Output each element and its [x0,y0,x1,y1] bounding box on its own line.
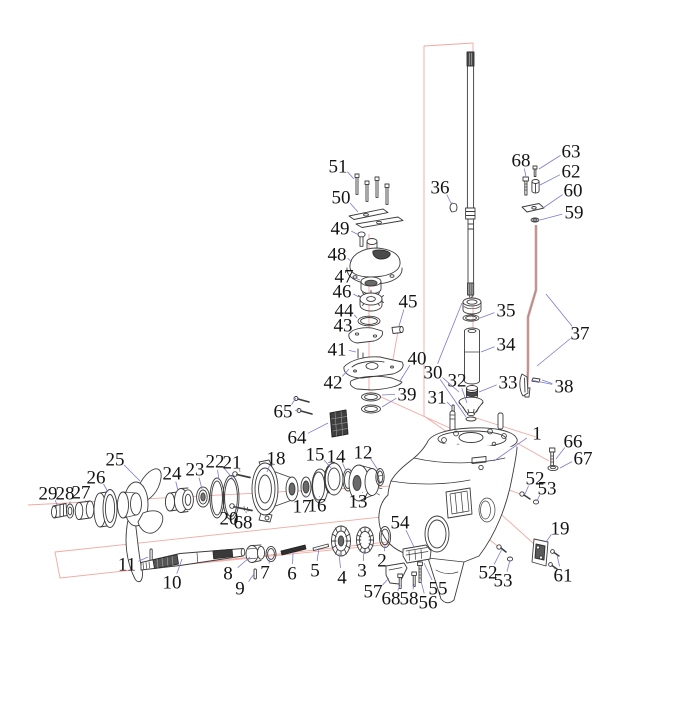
part-label: 7 [260,563,270,584]
part-40-gasket [350,376,402,390]
part-39-seal-rings [362,393,381,413]
part-shift-rod [524,225,536,397]
part-labels: 5150494847464443414245403965643668636260… [39,142,593,614]
part-label: 55 [429,579,448,600]
part-28-washer [66,504,73,518]
part-label: 21 [223,453,242,474]
part-label: 59 [565,203,584,224]
part-26-thrust-ring [94,490,117,528]
part-45-tube-fitting [392,327,403,334]
leader-line [537,339,571,367]
leader-line [438,303,462,364]
part-43-gasket [349,328,383,343]
leader-line [308,423,328,433]
part-label: 3 [357,561,367,582]
part-15-bearing [325,463,343,495]
part-36-clip [450,203,457,212]
part-7-washer [266,546,276,561]
leader-line [481,347,495,352]
part-57-trim-tab [386,563,407,584]
part-label: 32 [448,371,467,392]
part-label: 19 [551,519,570,540]
part-19-anode [532,539,548,566]
part-label: 46 [333,282,352,303]
part-50-plates [349,209,403,228]
leader-line [543,195,563,208]
part-label: 61 [554,566,573,587]
part-label: 15 [306,445,325,466]
leader-line [382,394,395,395]
part-27-spacer [75,501,94,520]
part-label: 33 [499,373,518,394]
leader-line [356,278,360,280]
part-label: 23 [186,460,205,481]
part-label: 68 [512,151,531,172]
part-59-oring [531,218,539,222]
part-label: 25 [106,450,125,471]
leader-line [540,214,562,220]
part-label: 35 [497,301,516,322]
part-label: 39 [398,385,417,406]
part-12-oring [376,468,384,485]
part-label: 37 [571,324,590,345]
part-label: 57 [364,582,383,603]
part-label: 13 [349,492,368,513]
part-label: 54 [391,513,411,534]
part-46-impeller [359,291,384,312]
part-66-bolt [550,448,555,466]
part-62-connector [532,180,539,193]
part-49-bolt [358,232,365,246]
part-label: 63 [562,142,581,163]
part-label: 5 [310,561,320,582]
leader-line [249,574,255,582]
part-label: 16 [308,496,327,517]
part-label: 4 [337,568,347,589]
part-label: 53 [494,571,513,592]
part-42-pump-base-plate [344,357,403,378]
leader-line [479,385,497,392]
part-label: 48 [328,245,347,266]
part-label: 62 [562,162,581,183]
part-label: 53 [538,479,557,500]
part-label: 24 [163,464,183,485]
exploded-parts-diagram: 5150494847464443414245403965643668636260… [0,0,693,720]
part-65-screws [294,397,312,415]
leader-line [539,155,561,169]
part-label: 68 [382,589,401,610]
part-label: 11 [118,555,136,576]
leader-line [382,578,389,585]
leader-line [349,350,356,352]
leader-line [480,313,495,318]
part-label: 2 [377,551,387,572]
part-17-seal [301,477,311,497]
leader-line [124,465,140,481]
leader-line [350,203,358,212]
leader-line [540,175,560,185]
part-53-washer-upper [533,500,538,504]
part-label: 68 [234,513,253,534]
part-label: 43 [334,316,353,337]
leader-line [546,294,572,326]
part-label: 1 [532,424,542,445]
part-9-pin [254,569,256,579]
part-64-anode-plate [330,410,348,437]
part-label: 6 [287,564,297,585]
part-label: 60 [564,181,583,202]
part-24-thrust-hub [165,488,193,513]
part-label: 67 [574,449,593,470]
part-label: 30 [424,363,443,384]
part-label: 36 [431,178,450,199]
part-23-washer [197,487,210,507]
part-label: 65 [274,402,293,423]
part-label: 10 [163,573,182,594]
part-52-screw-upper [520,492,530,499]
part-63-screw [533,166,537,177]
part-56-bolt [418,562,423,583]
part-35-washer [463,315,479,321]
part-label: 58 [400,589,419,610]
part-label: 27 [72,483,91,504]
leader-line [347,172,354,179]
diagram-canvas: 5150494847464443414245403965643668636260… [0,0,693,720]
part-label: 31 [428,388,447,409]
part-label: 8 [223,564,233,585]
part-label: 12 [354,443,373,464]
part-label: 49 [331,219,350,240]
part-51-bolts [355,174,389,204]
part-68-bolt-top [523,177,528,195]
part-32-pinion-gear [459,397,483,421]
part-label: 41 [328,340,347,361]
part-label: 45 [399,292,418,313]
part-29-prop-nut [52,504,68,519]
part-30-bearing-upper [463,298,481,314]
part-label: 42 [324,373,343,394]
part-drive-shaft [466,52,475,300]
part-3-bearing [356,527,373,553]
part-label: 64 [288,428,308,449]
part-label: 51 [329,157,348,178]
leader-line [354,315,357,318]
part-60-link-plate [522,204,544,213]
part-8-cam-follower [246,545,265,563]
part-label: 18 [267,449,286,470]
part-4-forward-gear [332,526,351,556]
leader-line [560,462,572,468]
part-38-bracket [520,374,540,396]
part-label: 34 [497,335,517,356]
part-label: 50 [332,188,351,209]
part-67-washer [548,465,558,470]
part-34-bearing-sleeve [465,328,480,384]
leader-line [447,402,452,407]
part-label: 9 [235,579,245,600]
part-33-spacer [467,386,478,399]
part-label: 14 [327,447,347,468]
part-label: 38 [555,377,574,398]
